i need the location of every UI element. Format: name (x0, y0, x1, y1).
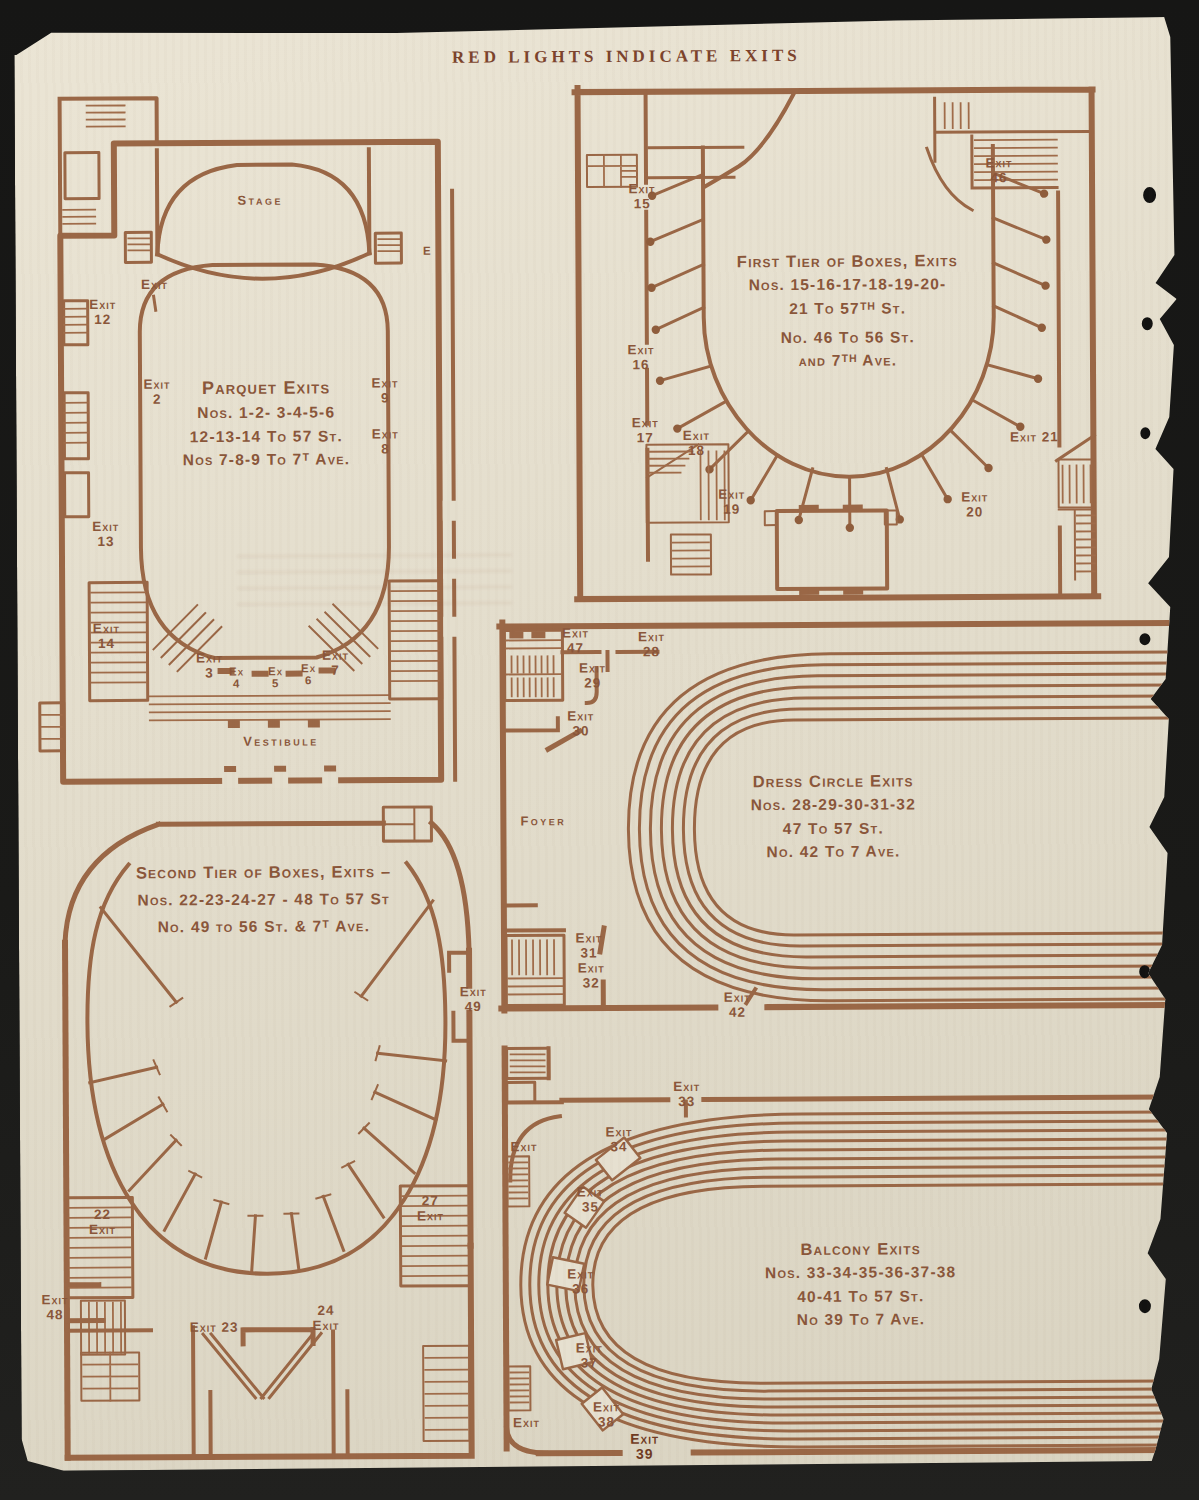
exit-label-22: 22 Exit (89, 1208, 116, 1237)
exit-label-3: Exit 3 (196, 651, 223, 680)
exit-label-36: Exit 36 (567, 1267, 594, 1296)
exit-label-48: Exit 48 (41, 1293, 68, 1322)
exit-label-42: Exit 42 (724, 991, 751, 1020)
exit-label-e: E (423, 245, 432, 257)
second-tier-note: Second Tier of Boxes, Exits – Nos. 22-23… (136, 861, 392, 937)
paper-hole (1142, 317, 1153, 330)
exit-label-left-upper: Exit (511, 1140, 538, 1155)
scan-background: RED LIGHTS INDICATE EXITS Stage Exit 12 … (0, 0, 1199, 1500)
dress-circle-note: Dress Circle Exits Nos. 28-29-30-31-32 4… (750, 770, 916, 862)
exit-label-31: Exit 31 (575, 931, 602, 960)
first-tier-note: First Tier of Boxes, Exits Nos. 15-16-17… (737, 250, 959, 371)
exit-label-34: Exit 34 (605, 1125, 632, 1154)
balcony-note: Balcony Exits Nos. 33-34-35-36-37-38 40-… (765, 1238, 957, 1330)
exit-label-7: Exit 7 (322, 649, 349, 678)
paper-hole (1139, 1299, 1151, 1313)
page-title: RED LIGHTS INDICATE EXITS (452, 46, 801, 68)
exit-label-left-lower: Exit (513, 1416, 540, 1431)
paper-hole (1143, 187, 1156, 203)
exit-label-20: Exit 20 (961, 490, 988, 519)
exit-label-49: Exit 49 (460, 985, 487, 1014)
exit-label-13: Exit 13 (92, 520, 119, 549)
paper-hole (1139, 633, 1150, 645)
parquet-note: Parquet Exits Nos. 1-2- 3-4-5-6 12-13-14… (182, 376, 350, 470)
exit-label-29: Exit 29 (579, 661, 606, 690)
exit-label-32: Exit 32 (578, 961, 605, 990)
exit-label-16: Exit 16 (627, 343, 654, 372)
exit-label-38: Exit 38 (593, 1400, 620, 1429)
exit-label-18: Exit 18 (683, 429, 710, 458)
exit-label-24: 24 Exit (312, 1304, 339, 1333)
exit-label-15: Exit 15 (629, 182, 656, 211)
exit-label-35: Exit 35 (577, 1185, 604, 1214)
exit-label-23: Exit 23 (190, 1321, 239, 1336)
floor-plans-drawing (0, 0, 1199, 1500)
scanned-page: RED LIGHTS INDICATE EXITS Stage Exit 12 … (0, 0, 1199, 1500)
exit-label-4: Ex 4 (229, 665, 244, 690)
exit-label-5: Ex 5 (268, 665, 283, 690)
exit-label-46: Exit 46 (985, 156, 1012, 185)
stage-label: Stage (237, 194, 283, 208)
vestibule-label: Vestibule (243, 734, 319, 748)
exit-label-33: Exit 33 (673, 1080, 700, 1109)
exit-label-17: Exit 17 (632, 416, 659, 445)
paper-hole (1139, 965, 1150, 978)
exit-label-30: Exit 30 (567, 709, 594, 738)
exit-label-19: Exit 19 (718, 488, 745, 517)
exit-label-6: Ex 6 (301, 662, 316, 687)
exit-label-21: Exit 21 (1010, 430, 1059, 445)
exit-label-14: Exit 14 (93, 622, 120, 651)
exit-label-27: 27 Exit (417, 1194, 444, 1223)
exit-label-28: Exit 28 (638, 630, 665, 659)
exit-label-1: Exit (141, 278, 168, 293)
exit-label-8: Exit 8 (372, 427, 399, 456)
exit-label-2: Exit 2 (144, 378, 171, 407)
exit-label-12: Exit 12 (89, 298, 116, 327)
exit-label-9: Exit 9 (372, 376, 399, 405)
exit-label-39: Exit 39 (630, 1432, 659, 1462)
exit-label-37: Exit 37 (576, 1341, 603, 1370)
paper-hole (1140, 427, 1150, 439)
exit-label-47: Exit 47 (562, 626, 589, 655)
foyer-label: Foyer (520, 814, 566, 828)
